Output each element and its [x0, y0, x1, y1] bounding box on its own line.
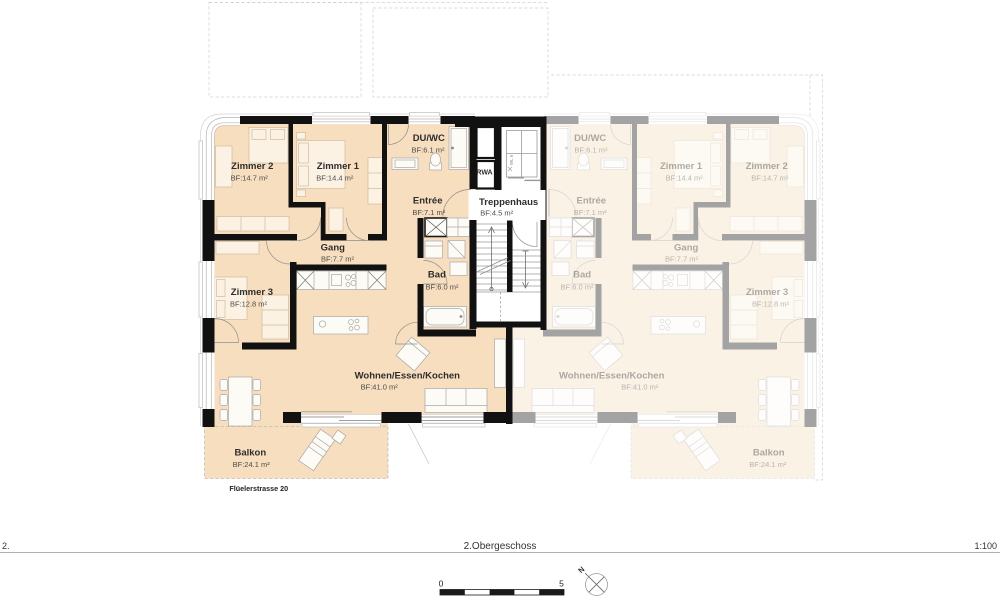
svg-text:Balkon: Balkon: [234, 448, 266, 459]
svg-text:Entrée: Entrée: [413, 196, 443, 207]
svg-text:BF:14.7 m²: BF:14.7 m²: [751, 174, 789, 183]
svg-text:Flüelerstrasse 20: Flüelerstrasse 20: [229, 484, 288, 493]
svg-text:Balkon: Balkon: [753, 448, 785, 459]
svg-text:BF:12.8 m²: BF:12.8 m²: [230, 300, 268, 309]
svg-text:BF:7.1 m²: BF:7.1 m²: [412, 208, 445, 217]
svg-text:BF:6.1 m²: BF:6.1 m²: [412, 146, 445, 155]
svg-text:DU/WC: DU/WC: [413, 133, 445, 144]
svg-text:BF:7.7 m²: BF:7.7 m²: [665, 255, 698, 264]
svg-text:Entrée: Entrée: [577, 196, 607, 207]
svg-text:Bad: Bad: [573, 270, 591, 281]
svg-text:BF:6.0 m²: BF:6.0 m²: [426, 283, 459, 292]
svg-text:2.: 2.: [2, 541, 10, 551]
svg-text:Zimmer 2: Zimmer 2: [231, 161, 273, 172]
svg-text:Wohnen/Essen/Kochen: Wohnen/Essen/Kochen: [355, 371, 461, 382]
svg-text:Treppenhaus: Treppenhaus: [479, 197, 538, 208]
svg-text:0: 0: [439, 579, 444, 589]
svg-text:BF:14.4 m²: BF:14.4 m²: [666, 174, 704, 183]
svg-text:BF:41.0 m²: BF:41.0 m²: [361, 383, 399, 392]
svg-text:Zimmer 3: Zimmer 3: [231, 287, 273, 298]
svg-text:2.Obergeschoss: 2.Obergeschoss: [464, 541, 537, 552]
svg-text:BF:6.0 m²: BF:6.0 m²: [561, 283, 594, 292]
svg-text:1:100: 1:100: [974, 541, 997, 551]
svg-text:Gang: Gang: [674, 243, 698, 254]
svg-text:BF:12.8 m²: BF:12.8 m²: [752, 300, 790, 309]
svg-text:Gang: Gang: [321, 243, 345, 254]
svg-text:Wohnen/Essen/Kochen: Wohnen/Essen/Kochen: [559, 371, 665, 382]
svg-text:BF:41.0 m²: BF:41.0 m²: [621, 383, 659, 392]
svg-text:Zimmer 2: Zimmer 2: [746, 161, 788, 172]
svg-text:Zimmer 1: Zimmer 1: [317, 161, 360, 172]
svg-text:Zimmer 3: Zimmer 3: [746, 287, 788, 298]
svg-text:RWA: RWA: [476, 170, 492, 177]
svg-text:BF:14.4 m²: BF:14.4 m²: [316, 174, 354, 183]
svg-text:BF:7.7 m²: BF:7.7 m²: [321, 255, 354, 264]
svg-text:BF:24.1 m²: BF:24.1 m²: [233, 460, 271, 469]
svg-text:Bad: Bad: [428, 270, 446, 281]
svg-text:BF:24.1 m²: BF:24.1 m²: [749, 460, 787, 469]
svg-text:DU/WC: DU/WC: [574, 133, 606, 144]
svg-text:BF:7.1 m²: BF:7.1 m²: [574, 208, 607, 217]
svg-text:BF:4.5 m²: BF:4.5 m²: [480, 209, 513, 218]
svg-text:BF:6.1 m²: BF:6.1 m²: [575, 146, 608, 155]
svg-text:5: 5: [559, 579, 564, 589]
svg-text:WL 6: WL 6: [509, 154, 514, 165]
svg-text:Zimmer 1: Zimmer 1: [660, 161, 703, 172]
svg-text:BF:14.7 m²: BF:14.7 m²: [231, 174, 269, 183]
